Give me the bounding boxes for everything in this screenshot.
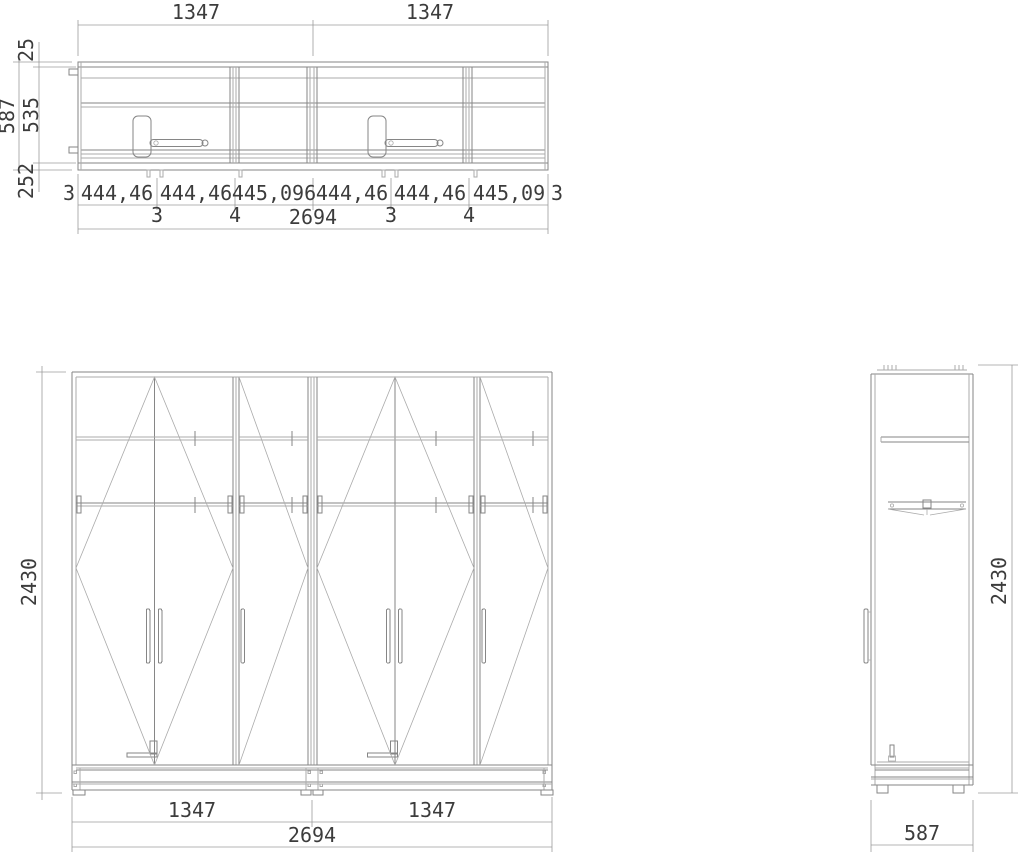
plan-width-right-label: 1347 <box>406 0 454 24</box>
plan-hinge-top <box>69 69 78 75</box>
plan-chain-7: 3 <box>551 181 563 205</box>
side-rail-bracket <box>888 500 966 515</box>
plan-lock-left <box>133 116 208 157</box>
front-height-label: 2430 <box>17 558 41 606</box>
plan-dim-top-widths <box>78 20 548 56</box>
front-plinth <box>72 765 553 795</box>
plan-chain-4: 444,46 <box>316 181 388 205</box>
plan-body <box>69 62 548 177</box>
front-view: 2430 <box>17 366 553 852</box>
plan-gap-3: 4 <box>463 203 475 227</box>
plan-chain-1: 444,46 <box>81 181 153 205</box>
plan-gap-0: 3 <box>151 203 163 227</box>
side-view: 2430 587 <box>864 365 1018 852</box>
plan-depth-rear-label: 252 <box>14 163 38 199</box>
front-body <box>72 372 553 795</box>
side-height-label: 2430 <box>987 557 1011 605</box>
cad-drawing: 1347 1347 587 535 25 252 <box>0 0 1024 857</box>
plan-lock-right <box>368 116 443 157</box>
plan-chain-6: 445,09 <box>473 181 545 205</box>
front-module-left-label: 1347 <box>168 798 216 822</box>
side-depth-label: 587 <box>904 821 940 845</box>
plan-hinge-bottom <box>69 147 78 153</box>
plan-chain-5: 444,46 <box>394 181 466 205</box>
plan-chain-2: 444,46 <box>160 181 232 205</box>
plan-view: 1347 1347 587 535 25 252 <box>0 0 563 234</box>
side-body <box>871 365 973 793</box>
front-overall-width-label: 2694 <box>288 823 336 847</box>
plan-depth-interior-label: 535 <box>19 97 43 133</box>
plan-chain-3: 445,096 <box>232 181 316 205</box>
plan-width-left-label: 1347 <box>172 0 220 24</box>
cad-drawing-canvas: 1347 1347 587 535 25 252 <box>0 0 1024 857</box>
side-floor-lock <box>889 745 896 761</box>
plan-chain-0: 3 <box>63 181 75 205</box>
plan-gap-1: 4 <box>229 203 241 227</box>
front-door-handles <box>146 609 485 663</box>
front-module-right-label: 1347 <box>408 798 456 822</box>
front-floor-locks <box>127 741 398 757</box>
side-handle <box>864 609 871 663</box>
plan-depth-front-label: 25 <box>14 38 38 62</box>
plan-depth-overall-label: 587 <box>0 98 19 134</box>
plan-overall-width-label: 2694 <box>289 205 337 229</box>
plan-gap-2: 3 <box>385 203 397 227</box>
